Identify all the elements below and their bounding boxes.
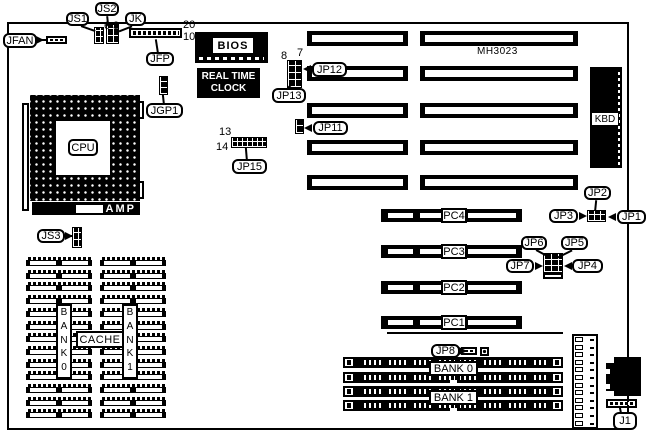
isa-slot-stripe <box>425 144 573 151</box>
memory-chip-pins <box>100 295 166 298</box>
memory-chip-body <box>30 363 56 367</box>
amp-bar-slot <box>76 205 103 213</box>
power-pin-tick <box>590 339 594 341</box>
memory-chip-body <box>136 375 162 379</box>
simm-latch-clip <box>347 389 351 394</box>
simm-latch <box>551 386 563 397</box>
power-pin-tick <box>590 415 594 417</box>
memory-chip-body <box>30 413 56 417</box>
jp11-jumper <box>295 119 304 134</box>
isa-slot-left-segment <box>307 31 408 46</box>
isa-slot-right-segment <box>420 103 578 118</box>
memory-chip-body <box>62 299 88 303</box>
memory-chip-body <box>104 413 130 417</box>
bios-chip: BIOS <box>195 32 268 63</box>
pci-slot-stripe <box>420 249 441 254</box>
cpu-socket-side-bar <box>22 103 29 211</box>
memory-chip-body <box>136 325 162 329</box>
memory-chip-row <box>26 409 92 418</box>
jp4-jp5-jp6-jp7-pins <box>543 273 563 279</box>
pci-slot-stripe <box>388 320 413 325</box>
callout-pointer-arrow <box>304 124 312 132</box>
callout-label-jfp: JFP <box>146 52 174 66</box>
board-outline <box>7 22 629 430</box>
pin-number-label: 13 <box>219 126 231 138</box>
simm-latch-clip <box>555 389 559 394</box>
power-pin-square <box>575 383 583 388</box>
callout-label-jp8: JP8 <box>431 344 460 358</box>
callout-pointer-arrow <box>459 347 467 355</box>
callout-label-js2: JS2 <box>95 2 119 16</box>
memory-chip-body <box>104 299 130 303</box>
pin-number-label: 20 <box>183 19 195 31</box>
callout-pointer-arrow <box>65 232 73 240</box>
memory-chip-body <box>136 363 162 367</box>
rtc-label-line2: CLOCK <box>211 83 247 95</box>
cpu-socket: CPU <box>30 95 140 201</box>
memory-chip-body <box>30 286 56 290</box>
power-pin-square <box>575 390 583 395</box>
power-pin-square <box>575 345 583 350</box>
pci-slot-stripe <box>420 320 441 325</box>
memory-chip-pins <box>100 384 166 387</box>
simm-slot-notch <box>450 380 457 383</box>
callout-label-jp15: JP15 <box>232 159 267 174</box>
simm-latch <box>343 400 355 411</box>
power-pin-square <box>575 360 583 365</box>
memory-chip-body <box>62 286 88 290</box>
callout-label-jgp1: JGP1 <box>146 103 183 118</box>
jfp-header <box>129 28 182 38</box>
amp-brand-label: AMP <box>106 202 136 215</box>
cpu-label: CPU <box>68 139 98 156</box>
memory-chip-body <box>136 401 162 405</box>
pin-number-label: 14 <box>216 141 228 153</box>
din-notch <box>606 369 610 374</box>
power-connector <box>572 334 598 429</box>
callout-label-jp5: JP5 <box>561 236 588 250</box>
board-id-text: MH3023 <box>477 46 518 57</box>
isa-slot-stripe <box>312 107 403 114</box>
memory-chip-body <box>136 261 162 265</box>
memory-chip-pins <box>26 384 92 387</box>
memory-chip-body <box>30 388 56 392</box>
callout-pointer-arrow <box>564 262 572 270</box>
cpu-socket-tab-bottom <box>138 181 144 199</box>
memory-chip-body <box>136 350 162 354</box>
pci-slot-stripe <box>468 285 516 290</box>
power-pin-tick <box>590 377 594 379</box>
isa-slot-stripe <box>425 70 573 77</box>
callout-label-jp13: JP13 <box>272 88 306 103</box>
memory-chip-pins <box>100 270 166 273</box>
memory-chip-body <box>30 274 56 278</box>
memory-chip-pins <box>26 409 92 412</box>
power-pin-square <box>575 398 583 403</box>
callout-label-jp4: JP4 <box>572 259 603 273</box>
isa-slot-stripe <box>425 179 573 186</box>
isa-slot-stripe <box>425 107 573 114</box>
memory-chip-pins <box>26 270 92 273</box>
bank0-vertical-label: B A N K 0 <box>56 304 72 379</box>
memory-chip-row <box>100 295 166 304</box>
simm-latch-clip <box>555 375 559 380</box>
isa-slot-stripe <box>425 35 573 42</box>
power-pin-tick <box>590 423 594 425</box>
pci-slot-stripe <box>420 285 441 290</box>
j1-connector <box>606 399 637 408</box>
simm-latch <box>343 357 355 368</box>
power-pin-square <box>575 375 583 380</box>
memory-chip-body <box>30 325 56 329</box>
din-notch <box>606 384 610 389</box>
pin-number-label: 8 <box>281 50 287 62</box>
memory-chip-row <box>100 409 166 418</box>
isa-slot-right-segment <box>420 66 578 81</box>
memory-chip-pins <box>26 397 92 400</box>
callout-pointer-arrow <box>303 65 311 73</box>
memory-chip-row <box>100 282 166 291</box>
power-pin-square <box>575 352 583 357</box>
jp1-jp2-jp3-block <box>587 210 606 222</box>
memory-chip-body <box>62 261 88 265</box>
pci-slot-label: PC4 <box>441 208 467 223</box>
memory-chip-row <box>26 270 92 279</box>
amp-socket-bar: AMP <box>32 202 140 215</box>
pci-slot-stripe <box>388 213 413 218</box>
memory-chip-row <box>26 257 92 266</box>
cpu-socket-inner: CPU <box>56 121 110 175</box>
isa-slot-right-segment <box>420 31 578 46</box>
memory-chip-body <box>62 274 88 278</box>
callout-label-jp11: JP11 <box>313 121 348 135</box>
memory-chip-body <box>136 286 162 290</box>
pin-number-label: 10 <box>183 31 195 43</box>
isa-slot-left-segment <box>307 103 408 118</box>
isa-slot-left-segment <box>307 175 408 190</box>
simm-bank-label: BANK 1 <box>429 390 478 405</box>
memory-chip-pins <box>26 282 92 285</box>
memory-chip-body <box>104 401 130 405</box>
isa-slot-stripe <box>312 35 403 42</box>
callout-pointer-arrow <box>579 212 587 220</box>
power-pin-tick <box>590 369 594 371</box>
simm-latch-clip <box>347 375 351 380</box>
callout-label-jp7: JP7 <box>506 259 534 273</box>
callout-label-jk: JK <box>125 12 146 26</box>
memory-chip-row <box>100 397 166 406</box>
power-pin-square <box>575 405 583 410</box>
pci-slot-stripe <box>388 249 413 254</box>
simm-bank-label: BANK 0 <box>429 361 478 376</box>
simm-slot-notch <box>450 408 457 411</box>
keyboard-controller-chip: KBD <box>590 67 622 168</box>
pci-slot-label: PC2 <box>441 280 467 295</box>
pci-slot-label: PC3 <box>441 244 467 259</box>
memory-chip-body <box>30 375 56 379</box>
callout-label-jp3: JP3 <box>549 209 578 223</box>
isa-slot-stripe <box>312 144 403 151</box>
isa-slot-stripe <box>312 179 403 186</box>
power-pin-tick <box>590 347 594 349</box>
memory-chip-body <box>30 261 56 265</box>
memory-chip-pins <box>26 257 92 260</box>
simm-area-line <box>387 332 563 334</box>
memory-chip-body <box>62 388 88 392</box>
memory-chip-body <box>136 274 162 278</box>
memory-chip-pins <box>100 282 166 285</box>
simm-latch <box>551 357 563 368</box>
simm-latch-clip <box>555 403 559 408</box>
bios-chip-pins <box>199 57 264 60</box>
jp8-pad <box>480 347 489 356</box>
callout-pointer-arrow <box>608 213 616 221</box>
memory-chip-body <box>30 299 56 303</box>
callout-label-jp6: JP6 <box>521 236 547 250</box>
power-pin-square <box>575 421 583 426</box>
memory-chip-row <box>26 397 92 406</box>
memory-chip-body <box>30 312 56 316</box>
memory-chip-body <box>136 299 162 303</box>
pci-slot-stripe <box>468 320 516 325</box>
memory-chip-body <box>62 401 88 405</box>
jp15-block <box>231 137 267 148</box>
power-pin-square <box>575 413 583 418</box>
memory-chip-row <box>26 282 92 291</box>
simm-latch <box>343 372 355 383</box>
memory-chip-pins <box>100 257 166 260</box>
memory-chip-row <box>26 295 92 304</box>
power-pin-tick <box>590 407 594 409</box>
memory-chip-row <box>100 270 166 279</box>
memory-chip-body <box>30 337 56 341</box>
kbd-chip-label: KBD <box>591 112 619 126</box>
memory-chip-body <box>104 274 130 278</box>
memory-chip-row <box>100 384 166 393</box>
simm-latch <box>551 400 563 411</box>
isa-slot-right-segment <box>420 175 578 190</box>
callout-pointer-arrow <box>535 262 543 270</box>
power-pin-square <box>575 367 583 372</box>
power-pin-tick <box>590 392 594 394</box>
pci-slot-stripe <box>468 249 516 254</box>
power-pin-tick <box>590 385 594 387</box>
callout-label-jp2: JP2 <box>584 186 611 200</box>
memory-chip-body <box>30 350 56 354</box>
motherboard-diagram: BIOS REAL TIME CLOCK KBD CPU AMP MH3023 … <box>0 0 648 442</box>
power-pin-square <box>575 337 583 342</box>
simm-latch <box>551 372 563 383</box>
callout-label-js1: JS1 <box>66 12 89 26</box>
jgp1-jumper <box>159 76 168 95</box>
jfan-connector <box>46 36 67 44</box>
memory-chip-body <box>136 388 162 392</box>
callout-pointer-line <box>106 16 109 26</box>
callout-label-jp12: JP12 <box>312 62 347 77</box>
real-time-clock-chip: REAL TIME CLOCK <box>197 68 260 98</box>
memory-chip-row <box>100 257 166 266</box>
memory-chip-pins <box>100 409 166 412</box>
memory-chip-body <box>104 388 130 392</box>
callout-label-jp1: JP1 <box>617 210 646 224</box>
pci-slot-stripe <box>388 285 413 290</box>
pin-number-label: 7 <box>297 47 303 59</box>
pci-slot-label: PC1 <box>441 315 467 330</box>
simm-latch <box>343 386 355 397</box>
memory-chip-body <box>136 413 162 417</box>
cpu-socket-tab-top <box>138 101 144 119</box>
bank1-vertical-label: B A N K 1 <box>122 304 138 379</box>
rtc-label-line1: REAL TIME <box>202 71 256 83</box>
memory-chip-body <box>104 261 130 265</box>
power-pin-tick <box>590 354 594 356</box>
js3-jumper <box>72 227 82 248</box>
callout-pointer-arrow <box>36 36 44 44</box>
pci-slot-stripe <box>420 213 441 218</box>
simm-latch-clip <box>555 360 559 365</box>
memory-chip-body <box>104 286 130 290</box>
memory-chip-pins <box>26 295 92 298</box>
power-pin-tick <box>590 362 594 364</box>
cache-label: CACHE <box>76 331 124 348</box>
memory-chip-body <box>62 413 88 417</box>
callout-label-jfan: JFAN <box>3 33 37 48</box>
pci-slot-stripe <box>468 213 516 218</box>
isa-slot-left-segment <box>307 140 408 155</box>
memory-chip-body <box>30 401 56 405</box>
callout-label-js3: JS3 <box>37 229 65 243</box>
memory-chip-body <box>136 337 162 341</box>
memory-chip-row <box>26 384 92 393</box>
simm-latch-clip <box>347 403 351 408</box>
memory-chip-body <box>136 312 162 316</box>
simm-latch-clip <box>347 360 351 365</box>
callout-label-j1: J1 <box>613 412 637 430</box>
isa-slot-right-segment <box>420 140 578 155</box>
bios-chip-label: BIOS <box>213 38 253 53</box>
power-pin-tick <box>590 400 594 402</box>
keyboard-din-connector <box>614 357 641 396</box>
memory-chip-pins <box>100 397 166 400</box>
